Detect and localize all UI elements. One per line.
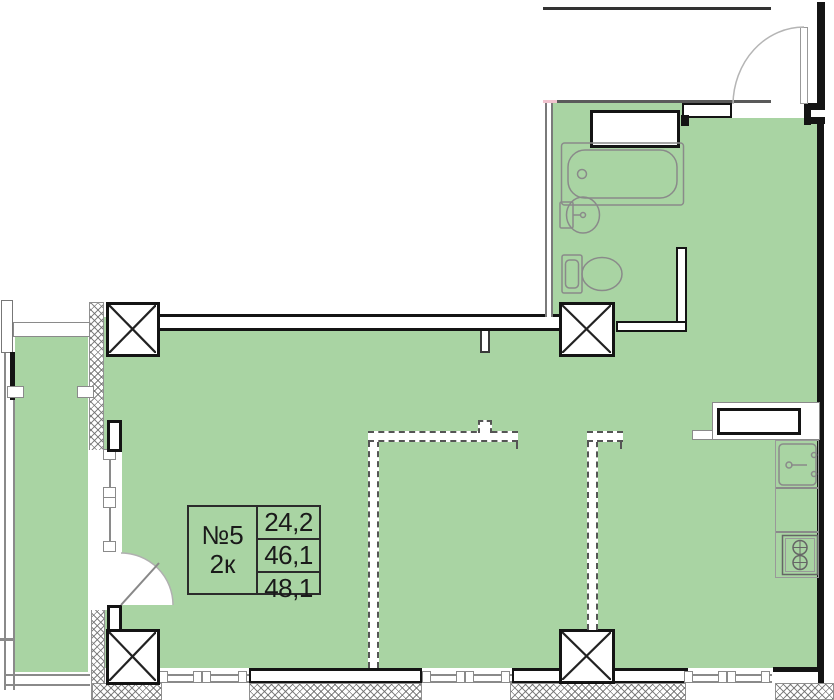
window-1-mullion [193, 671, 202, 683]
balcony-window-mullion [103, 497, 116, 508]
corridor-top-line [543, 7, 771, 10]
window-2-mullion [456, 671, 465, 683]
unit-rooms: 2к [210, 550, 236, 579]
toilet-icon [560, 250, 626, 298]
dashed-partition-tick [620, 442, 622, 449]
unit-label-areas: 24,2 46,1 48,1 [258, 507, 319, 593]
entry-top-wall [682, 103, 732, 118]
window-3-mullion [684, 671, 693, 683]
balcony-bottom-line-b [4, 684, 90, 686]
washbasin-icon [558, 192, 602, 236]
window-3-mullion [727, 671, 736, 683]
main-room-fill [104, 317, 818, 668]
window-2-mullion [465, 671, 474, 683]
exterior-wall-hatch-bottom-4 [775, 683, 834, 700]
entry-duct-outer-step [692, 430, 713, 440]
balcony-glazing-post-left [7, 386, 24, 398]
bathroom-wall-horizontal [616, 321, 687, 332]
main-top-wall [158, 314, 562, 331]
dashed-partition-tick [516, 442, 518, 449]
window-2-mullion [422, 671, 431, 683]
dashed-partition-horizontal-1 [368, 431, 518, 442]
kitchen-counter-divider [776, 531, 819, 533]
balcony-pilaster [1, 300, 13, 353]
right-wall-top [817, 2, 825, 103]
wall-stub [480, 331, 490, 353]
window-1-mullion [202, 671, 211, 683]
axis-pink-mark [543, 100, 557, 103]
entry-top-wall-tab [681, 115, 689, 126]
bathroom-wall-vertical [676, 247, 687, 332]
exterior-wall-hatch-bottom-3 [510, 683, 686, 700]
window-3-mullion [718, 671, 727, 683]
window-1-mullion [238, 671, 247, 683]
bottom-right-wall-fill [775, 672, 818, 683]
unit-area-value: 48,1 [258, 573, 319, 604]
balcony-glazing-post-right [77, 386, 94, 398]
balcony-bottom-line-a [4, 674, 90, 676]
bottom-wall-segment-1 [249, 668, 422, 683]
balcony-side-tick [0, 638, 14, 641]
dashed-partition-vertical-1 [368, 431, 379, 668]
stove-icon [781, 534, 819, 576]
column-icon [559, 629, 615, 684]
unit-label-left: №5 2к [189, 507, 258, 593]
balcony-door-arc [88, 548, 188, 610]
dashed-partition-vertical-2 [587, 431, 598, 630]
balcony-glazing-outer [4, 300, 6, 690]
exterior-wall-hatch-bottom-1 [92, 683, 162, 700]
column-icon [106, 302, 160, 357]
balcony-door-jamb-top [107, 420, 122, 452]
dashed-partition-notch [478, 420, 492, 433]
window-2-mullion [501, 671, 510, 683]
floor-plan-canvas: №5 2к 24,2 46,1 48,1 [0, 0, 834, 700]
exterior-wall-hatch-left-top [89, 302, 104, 452]
unit-area-value: 46,1 [258, 540, 319, 573]
bathroom-left-wall [545, 103, 553, 317]
entry-door-arc [730, 24, 814, 108]
column-icon [559, 302, 615, 357]
kitchen-sink-icon [777, 442, 819, 488]
unit-area-value: 24,2 [258, 507, 319, 540]
balcony-top-wall [13, 322, 90, 337]
entry-door-jamb-c [811, 117, 825, 124]
column-icon [106, 629, 160, 685]
window-1-mullion [159, 671, 168, 683]
unit-number: №5 [201, 521, 243, 550]
window-3-mullion [761, 671, 770, 683]
entry-hall-fill [687, 118, 818, 318]
dashed-partition-cap [587, 431, 623, 442]
exterior-wall-hatch-bottom-2 [249, 683, 422, 700]
unit-label-box: №5 2к 24,2 46,1 48,1 [187, 505, 321, 595]
entry-duct-inner [717, 408, 801, 435]
